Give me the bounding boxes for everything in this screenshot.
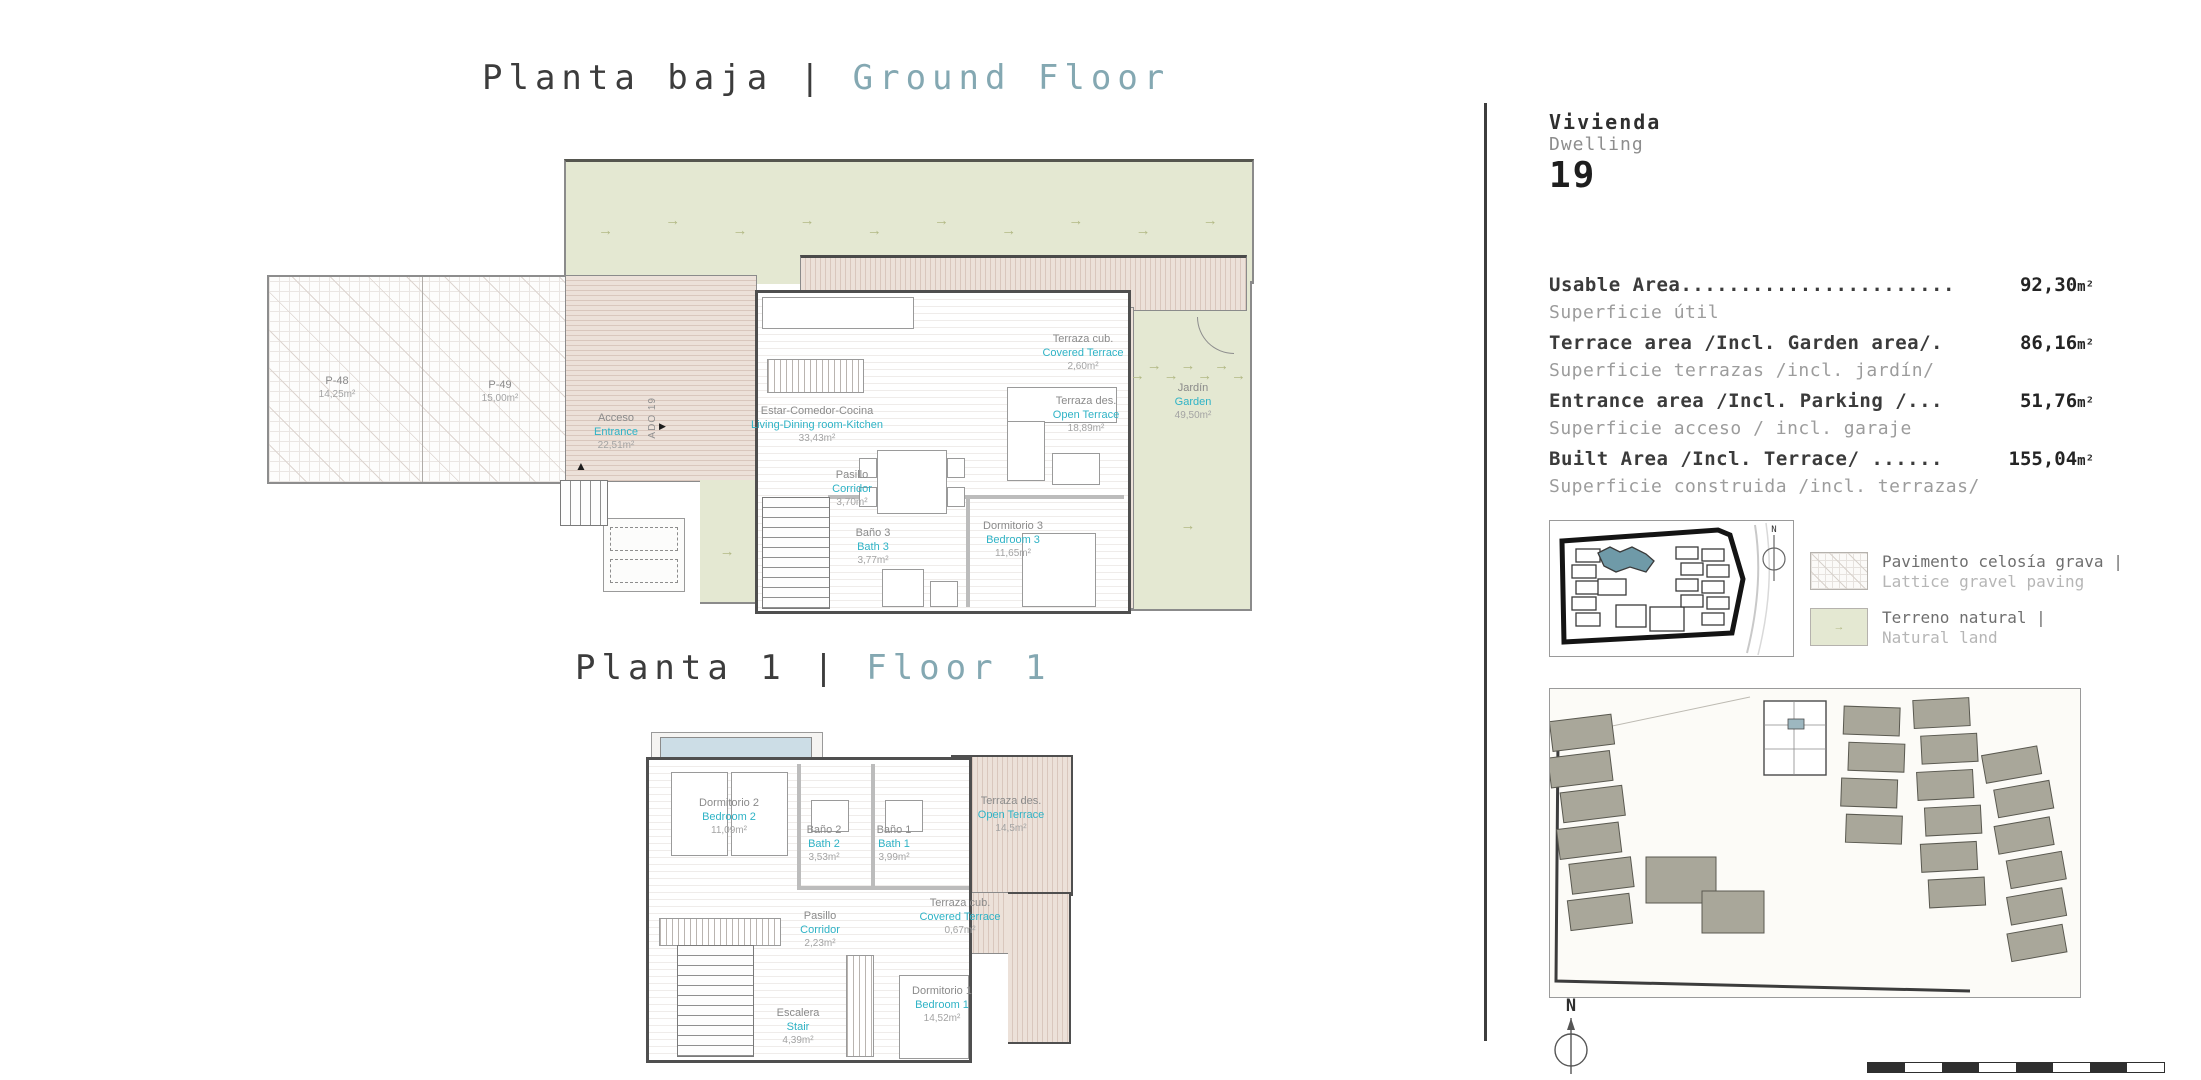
title-separator: | xyxy=(800,58,826,98)
room-label-p49: P-49 15,00m² xyxy=(482,379,519,405)
area-label: Built Area /Incl. Terrace/ ...... xyxy=(1549,446,2009,472)
dining-table xyxy=(877,450,947,514)
kitchen-appliance-row xyxy=(767,359,864,393)
bath3-fixture xyxy=(882,569,924,607)
area-row: Built Area /Incl. Terrace/ ......155,04m… xyxy=(1549,446,2094,500)
area-sublabel: Superficie construida /incl. terrazas/ xyxy=(1549,474,2094,500)
room-label-garden: Jardín Garden 49,50m² xyxy=(1175,382,1212,422)
area-label: Usable Area....................... xyxy=(1549,272,2020,298)
legend-label-es: Terreno natural | xyxy=(1882,608,2046,628)
stairs-floor1 xyxy=(677,945,754,1057)
utility-slot xyxy=(610,527,678,551)
area-value: 51,76 xyxy=(2020,388,2077,414)
coffee-table xyxy=(1052,453,1100,485)
room-label-bedroom2: Dormitorio 2 Bedroom 2 11,09m² xyxy=(699,797,759,837)
floor1-title: Planta 1 | Floor 1 xyxy=(575,648,1052,688)
area-label: Terrace area /Incl. Garden area/. xyxy=(1549,330,2020,356)
legend-item-natural: → Terreno natural | Natural land xyxy=(1810,608,2123,648)
plan-sheet: Planta baja | Ground Floor →→→→→→→→→→ →→… xyxy=(0,0,2201,1080)
interior-wall xyxy=(797,886,969,890)
up-arrow-icon: ▲ xyxy=(575,459,587,473)
chair xyxy=(947,458,965,478)
room-label-bath1: Baño 1 Bath 1 3,99m² xyxy=(877,824,912,864)
ado-19-label: ADO 19 xyxy=(647,397,658,439)
area-row: Terrace area /Incl. Garden area/.86,16m²… xyxy=(1549,330,2094,384)
area-value: 86,16 xyxy=(2020,330,2077,356)
utility-slot xyxy=(610,559,678,583)
room-label-stair: Escalera Stair 4,39m² xyxy=(777,1007,820,1047)
lattice-swatch xyxy=(1810,552,1868,590)
room-label-p48: P-48 14,25m² xyxy=(319,375,356,401)
room-label-living: Estar-Comedor-Cocina Living-Dining room-… xyxy=(751,405,883,445)
scale-segment xyxy=(1905,1063,1942,1072)
room-label-bedroom1: Dormitorio 1 Bedroom 1 14,52m² xyxy=(912,985,972,1025)
entrance-marker-icon: ▶ xyxy=(659,421,666,432)
minimap-north-label: N xyxy=(1771,525,1776,535)
area-unit: m² xyxy=(2077,390,2094,416)
scale-segment xyxy=(2090,1063,2127,1072)
wardrobe xyxy=(846,955,874,1057)
scale-segment xyxy=(2016,1063,2053,1072)
title-es: Planta baja xyxy=(482,58,773,98)
dwelling-block: Vivienda Dwelling 19 xyxy=(1549,110,1661,196)
interior-wall xyxy=(871,764,875,886)
chair xyxy=(947,487,965,507)
bath3-sink xyxy=(930,581,958,607)
area-sublabel: Superficie terrazas /incl. jardín/ xyxy=(1549,358,2094,384)
site-plan xyxy=(1549,688,2081,998)
parking-divider xyxy=(422,277,423,482)
room-label-covered-terrace-floor1: Terraza cub. Covered Terrace 0,67m² xyxy=(919,897,1000,937)
compass-svg xyxy=(1543,1016,1599,1078)
title-en: Floor 1 xyxy=(866,648,1051,688)
location-minimap: N xyxy=(1549,520,1794,657)
scale-segment xyxy=(1868,1063,1905,1072)
dwelling-label-es: Vivienda xyxy=(1549,110,1661,134)
area-value: 92,30 xyxy=(2020,272,2077,298)
area-table: Usable Area.......................92,30m… xyxy=(1549,272,2094,504)
area-unit: m² xyxy=(2077,332,2094,358)
area-unit: m² xyxy=(2077,274,2094,300)
title-en: Ground Floor xyxy=(853,58,1171,98)
dwelling-label-en: Dwelling xyxy=(1549,134,1661,155)
area-row: Usable Area.......................92,30m… xyxy=(1549,272,2094,326)
north-compass: N xyxy=(1543,996,1599,1078)
scale-segment xyxy=(2127,1063,2164,1072)
legend-label-en: Natural land xyxy=(1882,628,2046,648)
vertical-divider xyxy=(1484,103,1487,1041)
stairs-ground xyxy=(762,497,830,609)
arrow-icon: → xyxy=(1834,621,1845,633)
room-label-bedroom3: Dormitorio 3 Bedroom 3 11,65m² xyxy=(983,520,1043,560)
room-label-open-terrace-floor1: Terraza des. Open Terrace 14,5m² xyxy=(978,795,1044,835)
north-label: N xyxy=(1543,996,1599,1016)
detailed-dwelling-building xyxy=(1764,701,1826,775)
minimap-compass: N xyxy=(1763,525,1785,581)
road-line xyxy=(1747,525,1758,653)
room-label-covered-terrace-ground: Terraza cub. Covered Terrace 2,60m² xyxy=(1042,333,1123,373)
ground-floor-title: Planta baja | Ground Floor xyxy=(482,58,1170,98)
area-label: Entrance area /Incl. Parking /... xyxy=(1549,388,2020,414)
room-label-open-terrace-ground: Terraza des. Open Terrace 18,89m² xyxy=(1053,395,1119,435)
legend-item-lattice: Pavimento celosía grava | Lattice gravel… xyxy=(1810,552,2123,592)
road-line xyxy=(1758,523,1769,655)
scale-bar xyxy=(1867,1062,2165,1073)
scale-segment xyxy=(1942,1063,1979,1072)
legend: Pavimento celosía grava | Lattice gravel… xyxy=(1810,552,2123,664)
area-value: 155,04 xyxy=(2009,446,2078,472)
area-unit: m² xyxy=(2077,448,2094,474)
sofa-chaise xyxy=(1007,421,1045,481)
room-label-bath2: Baño 2 Bath 2 3,53m² xyxy=(807,824,842,864)
room-label-corridor-floor1: Pasillo Corridor 2,23m² xyxy=(800,910,840,950)
legend-label-es: Pavimento celosía grava | xyxy=(1882,552,2123,572)
skylight xyxy=(660,737,812,759)
area-sublabel: Superficie útil xyxy=(1549,300,2094,326)
area-sublabel: Superficie acceso / incl. garaje xyxy=(1549,416,2094,442)
scale-segment xyxy=(1979,1063,2016,1072)
site-plan-svg xyxy=(1550,689,2080,997)
dwelling-number: 19 xyxy=(1549,155,1661,196)
room-label-corridor-ground: Pasillo Corridor 3,70m² xyxy=(832,469,872,509)
interior-wall xyxy=(966,499,970,607)
compass-needle xyxy=(1567,1018,1575,1030)
room-label-bath3: Baño 3 Bath 3 3,77m² xyxy=(856,527,891,567)
floor1-plan: Dormitorio 2 Bedroom 2 11,09m² Baño 2 Ba… xyxy=(646,727,1109,1080)
natural-land-swatch: → xyxy=(1810,608,1868,646)
wardrobe xyxy=(659,918,781,946)
ground-floor-plan: →→→→→→→→→→ →→→→→→→→ ADO 19 ▶ xyxy=(267,159,1250,619)
room-label-entrance: Acceso Entrance 22,51m² xyxy=(594,412,638,452)
side-terrace-floor1 xyxy=(1008,892,1071,1044)
title-es: Planta 1 xyxy=(575,648,787,688)
kitchen-counter xyxy=(762,297,914,329)
entry-steps xyxy=(560,480,608,526)
legend-label-en: Lattice gravel paving xyxy=(1882,572,2123,592)
area-row: Entrance area /Incl. Parking /...51,76m²… xyxy=(1549,388,2094,442)
interior-wall xyxy=(797,764,801,886)
title-separator: | xyxy=(813,648,839,688)
location-minimap-svg: N xyxy=(1550,521,1793,656)
utility-area xyxy=(603,518,685,592)
scale-segment xyxy=(2053,1063,2090,1072)
parking-slab xyxy=(267,275,587,484)
